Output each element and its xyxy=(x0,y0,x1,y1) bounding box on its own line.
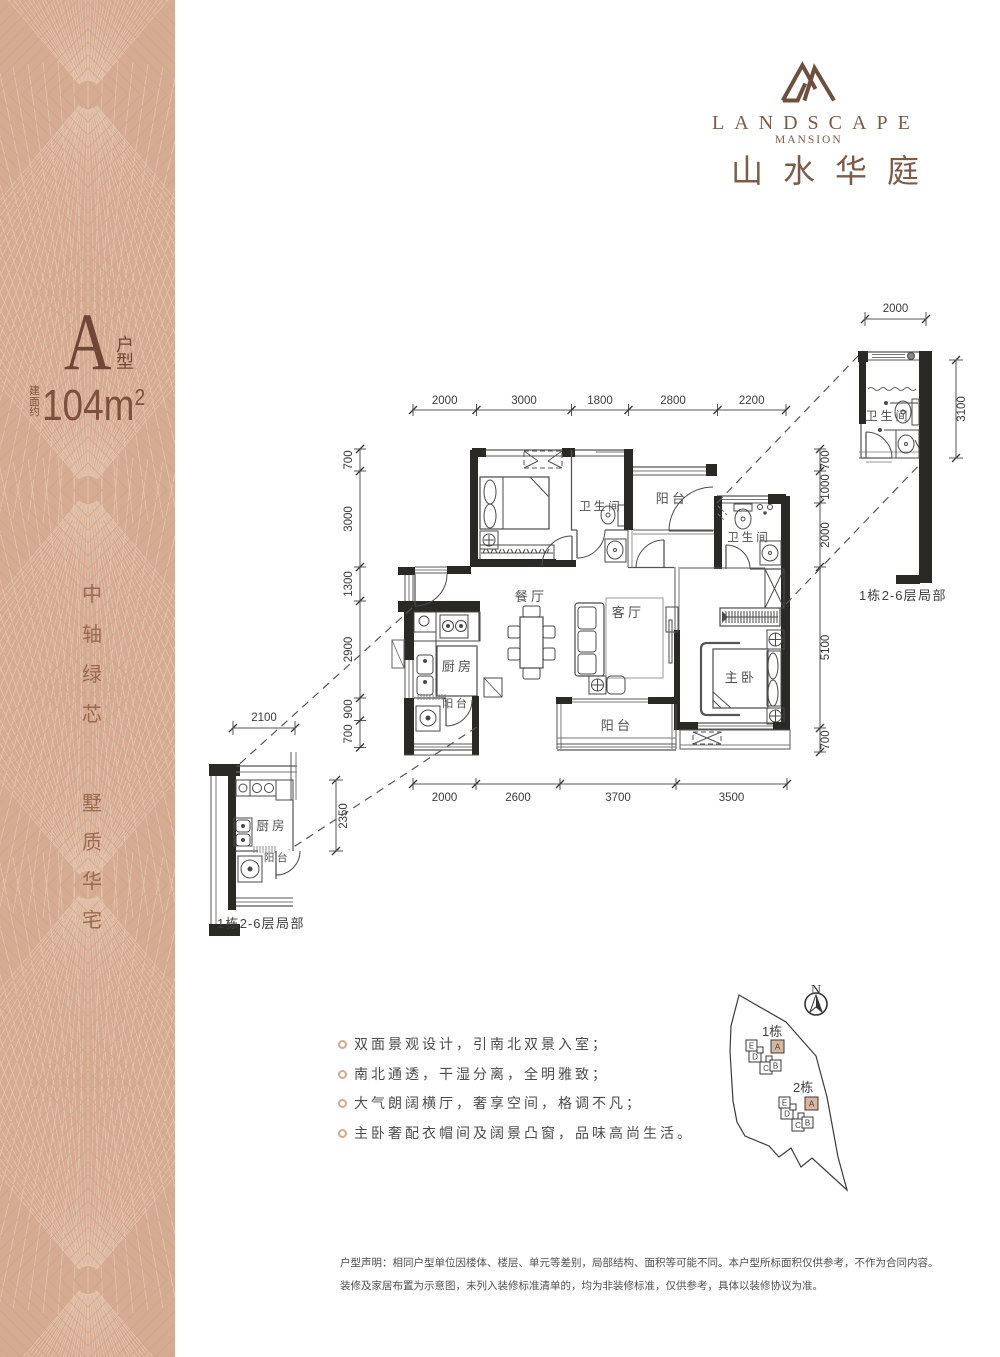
svg-text:2000: 2000 xyxy=(883,303,909,315)
svg-text:2200: 2200 xyxy=(739,395,765,407)
svg-text:2栋: 2栋 xyxy=(793,1080,813,1095)
svg-text:3700: 3700 xyxy=(605,792,631,804)
svg-text:3500: 3500 xyxy=(719,792,745,804)
svg-text:2350: 2350 xyxy=(338,803,350,829)
svg-text:2100: 2100 xyxy=(251,712,277,724)
svg-text:700: 700 xyxy=(820,730,832,749)
svg-text:1栋2-6层局部: 1栋2-6层局部 xyxy=(217,916,305,931)
svg-text:主卧: 主卧 xyxy=(725,670,757,685)
svg-text:1000: 1000 xyxy=(820,474,832,500)
svg-text:卫生间: 卫生间 xyxy=(865,409,910,423)
svg-text:1800: 1800 xyxy=(587,395,613,407)
svg-text:厨房: 厨房 xyxy=(256,818,287,833)
svg-text:5100: 5100 xyxy=(820,635,832,661)
svg-text:E: E xyxy=(782,1099,787,1108)
svg-text:700: 700 xyxy=(820,450,832,469)
svg-text:2600: 2600 xyxy=(505,792,531,804)
svg-text:B: B xyxy=(805,1119,810,1128)
svg-text:阳台: 阳台 xyxy=(264,851,290,864)
svg-text:1栋2-6层局部: 1栋2-6层局部 xyxy=(859,588,947,603)
svg-text:700: 700 xyxy=(343,450,355,469)
svg-text:厨房: 厨房 xyxy=(442,659,474,674)
svg-text:2000: 2000 xyxy=(432,792,458,804)
svg-text:700: 700 xyxy=(343,724,355,743)
svg-text:客厅: 客厅 xyxy=(612,605,644,620)
svg-text:3000: 3000 xyxy=(511,395,537,407)
svg-text:C: C xyxy=(795,1121,801,1130)
svg-text:900: 900 xyxy=(343,699,355,718)
svg-text:卫生间: 卫生间 xyxy=(727,530,770,544)
svg-text:1300: 1300 xyxy=(343,571,355,597)
svg-text:A: A xyxy=(775,1043,781,1052)
svg-text:餐厅: 餐厅 xyxy=(515,589,547,604)
svg-text:1栋: 1栋 xyxy=(762,1024,782,1039)
svg-text:2000: 2000 xyxy=(820,522,832,548)
svg-text:3000: 3000 xyxy=(343,506,355,532)
svg-text:D: D xyxy=(752,1053,758,1062)
svg-text:D: D xyxy=(784,1110,790,1119)
svg-text:C: C xyxy=(763,1064,769,1073)
svg-text:阳台: 阳台 xyxy=(442,696,470,710)
svg-text:2800: 2800 xyxy=(660,395,686,407)
svg-text:E: E xyxy=(749,1042,754,1051)
svg-text:卫生间: 卫生间 xyxy=(579,499,622,513)
svg-text:A: A xyxy=(809,1100,815,1109)
svg-text:阳台: 阳台 xyxy=(601,718,633,733)
svg-text:2000: 2000 xyxy=(432,395,458,407)
svg-text:2900: 2900 xyxy=(343,637,355,663)
svg-text:B: B xyxy=(773,1062,778,1071)
svg-text:3100: 3100 xyxy=(956,396,968,422)
